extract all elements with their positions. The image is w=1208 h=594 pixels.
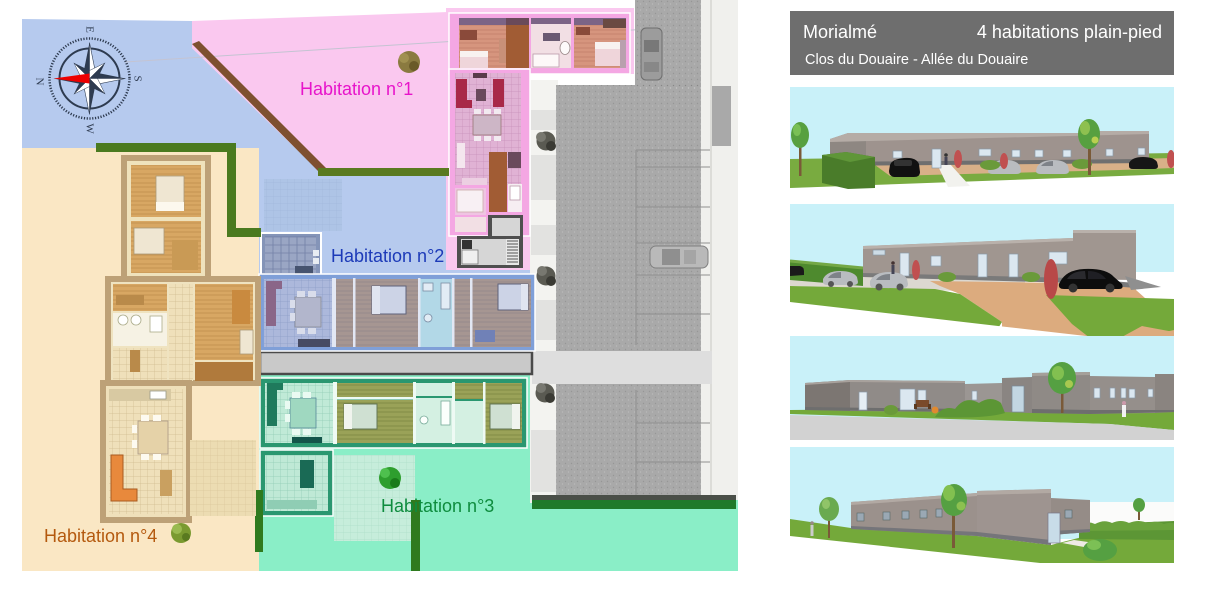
- svg-text:N: N: [34, 78, 46, 86]
- svg-text:E: E: [84, 26, 96, 33]
- svg-text:Habitation n°4: Habitation n°4: [44, 526, 157, 546]
- svg-text:S: S: [132, 75, 144, 81]
- svg-text:W: W: [84, 123, 96, 134]
- svg-text:Habitation n°3: Habitation n°3: [381, 496, 494, 516]
- svg-text:Habitation n°1: Habitation n°1: [300, 79, 413, 99]
- svg-text:Habitation n°2: Habitation n°2: [331, 246, 444, 266]
